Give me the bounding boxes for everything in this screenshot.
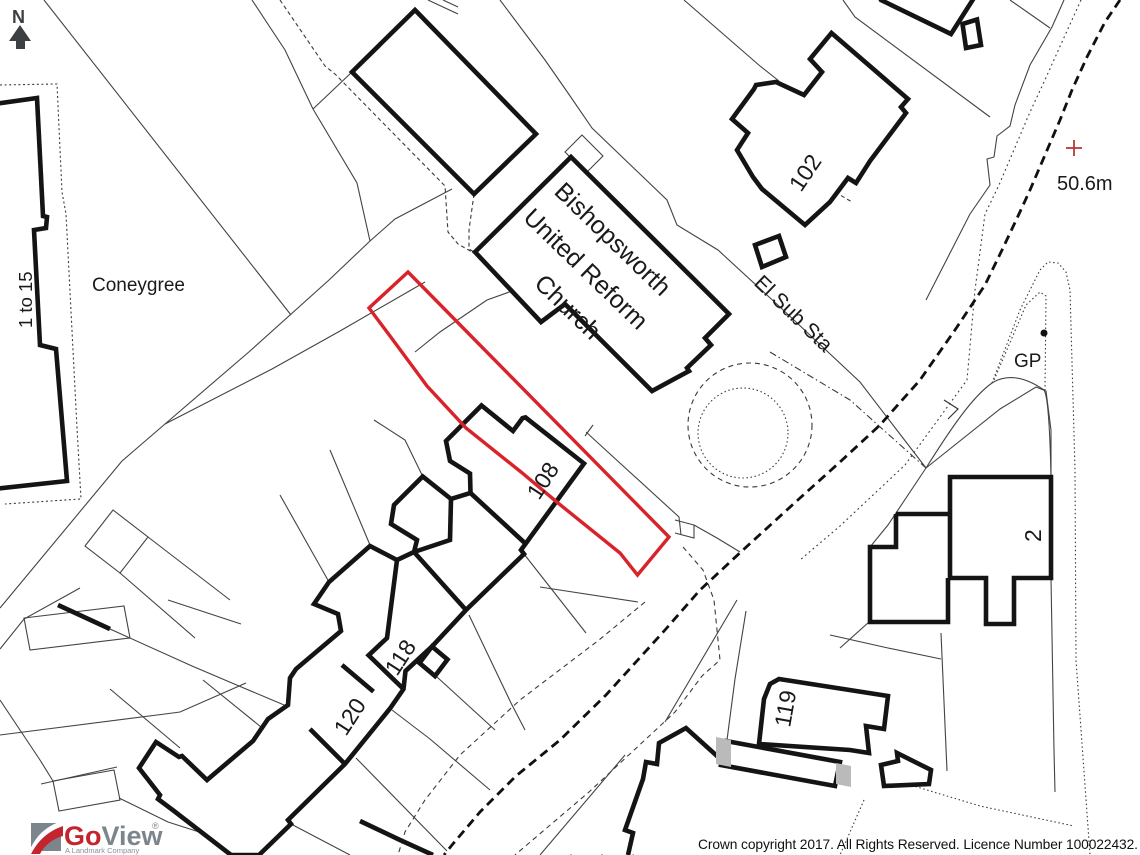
svg-text:1 to 15: 1 to 15 (15, 271, 36, 328)
svg-text:GP: GP (1014, 351, 1041, 372)
svg-text:A Landmark Company: A Landmark Company (65, 846, 139, 855)
svg-text:2: 2 (1020, 529, 1046, 542)
svg-text:Coneygree: Coneygree (92, 275, 185, 296)
svg-text:Crown copyright 2017. All Righ: Crown copyright 2017. All Rights Reserve… (698, 837, 1138, 852)
svg-text:N: N (12, 7, 25, 27)
svg-text:®: ® (152, 821, 159, 831)
svg-text:Plotted Scale - 1:1250: Plotted Scale - 1:1250 (560, 852, 698, 855)
svg-text:50.6m: 50.6m (1057, 173, 1113, 195)
